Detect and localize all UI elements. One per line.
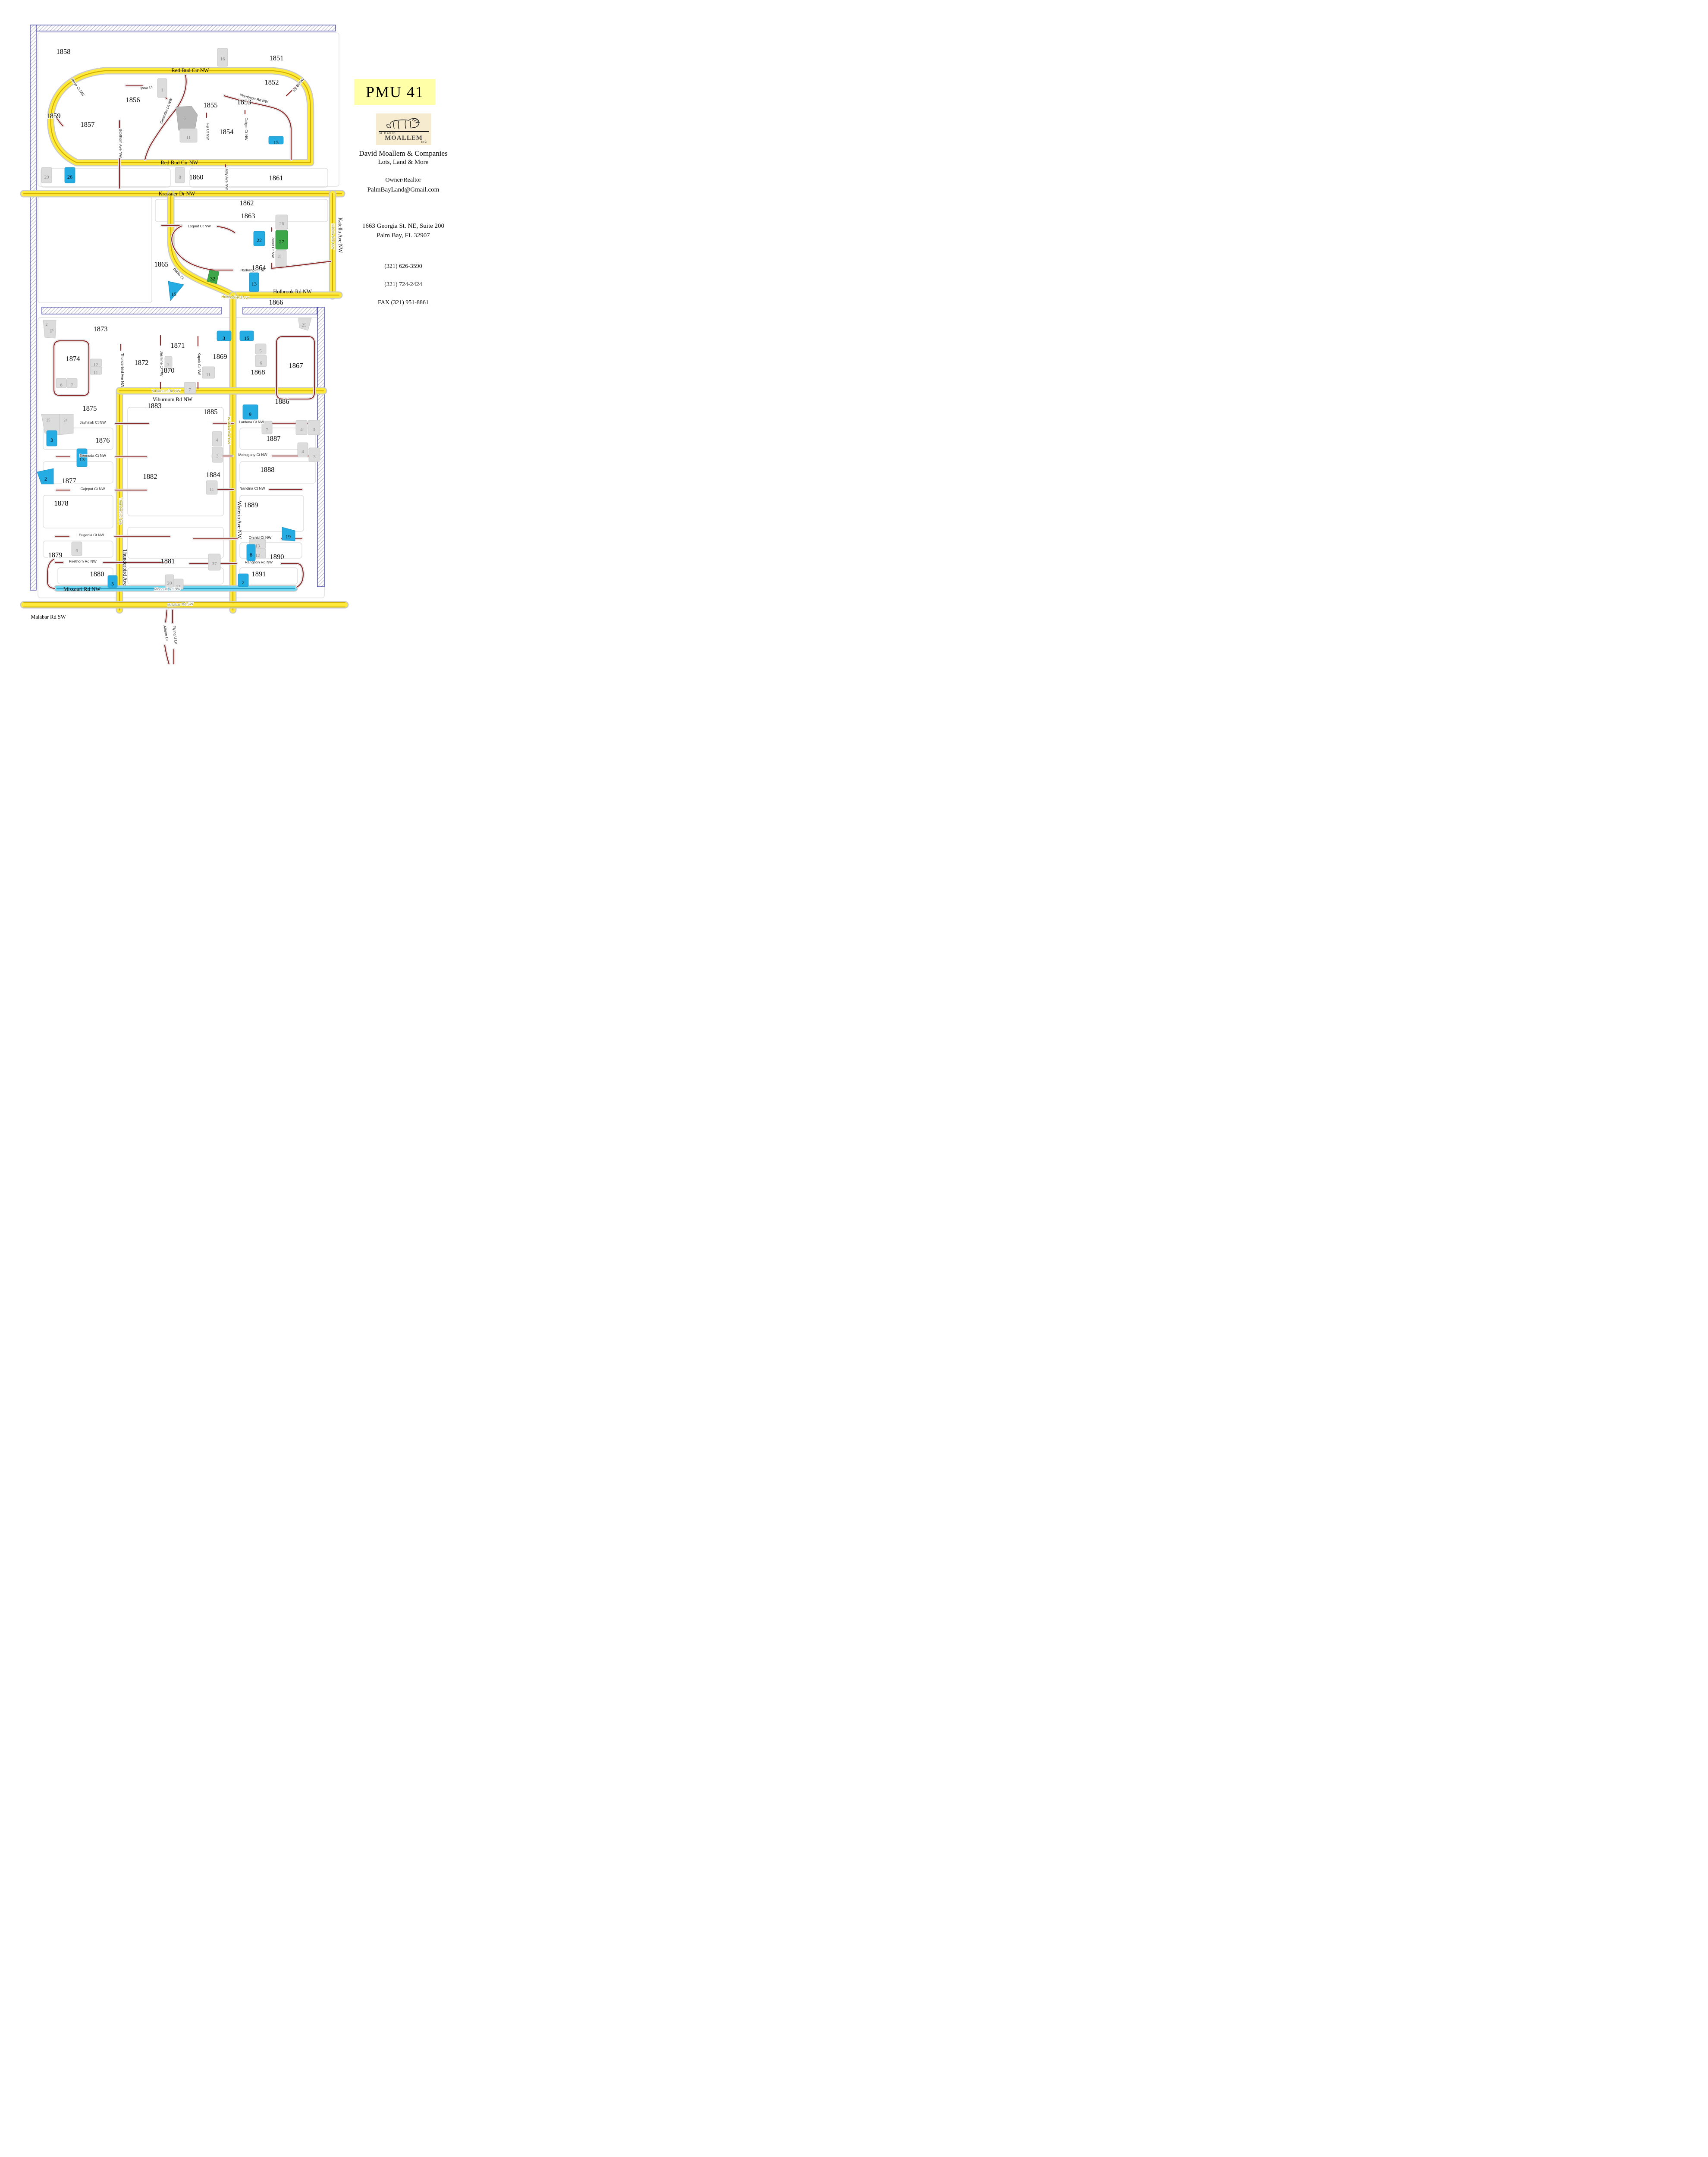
parcel-number: 2: [242, 579, 245, 585]
street-label-malabar-rd-sw: Malabar Rd SW: [167, 602, 193, 607]
parcel-number: 19: [286, 534, 291, 540]
street-label-orchid-ct-nw: Orchid Ct NW: [249, 535, 271, 540]
street-label-mahogany-ct-nw: Mahogany Ct NW: [238, 453, 267, 457]
company-tagline: Lots, Land & More: [343, 159, 464, 166]
parcel-number: 11: [94, 370, 98, 375]
block-number-1856: 1856: [126, 96, 140, 104]
parcel-letter-P: P: [50, 328, 53, 335]
company-role: Owner/Realtor: [343, 177, 464, 184]
street-label-holbrook-rd-nw: Holbrook Rd NW: [273, 289, 312, 295]
block-number-1890: 1890: [270, 553, 284, 561]
parcel-number: 20: [167, 581, 173, 586]
parcel-number: 11: [206, 372, 211, 377]
parcel-number: 25: [302, 323, 307, 328]
block-number-1883: 1883: [148, 402, 162, 410]
pmu-title-badge: PMU 41: [354, 79, 436, 105]
street-label-holbrook-rd-nw: Holbrook Rd NW: [221, 294, 249, 300]
street-label-red-bud-cir-nw: Red Bud Cir NW: [171, 67, 209, 73]
parcel-number: 7: [71, 383, 73, 388]
street-label-boxthorn-ave-nw: Boxthorn Ave NW: [119, 129, 123, 158]
street-label-flying-u-ln: Flying U Ln: [172, 626, 178, 645]
moallem-logo: M DAVID MOALLEM INC: [376, 113, 431, 145]
parcel-number: 6: [75, 548, 78, 553]
street-label-lantana-ct-nw: Lantana Ct NW: [239, 420, 264, 424]
parcel-number: 1: [161, 88, 163, 93]
company-fax: FAX (321) 951-8861: [343, 299, 464, 306]
hydrangea-rd-casing: [172, 226, 330, 270]
block-number-1886: 1886: [275, 397, 289, 406]
parcel-number: 6: [260, 361, 262, 366]
block-number-1867: 1867: [289, 362, 303, 370]
company-name: David Moallem & Companies: [343, 149, 464, 158]
street-label-rangoon-rd-nw: Rangoon Rd NW: [245, 560, 273, 564]
street-label-geiger-ct-nw: Geiger Ct NW: [244, 118, 248, 141]
boundary-hatch: [32, 25, 336, 31]
parcel-number: 3: [313, 454, 316, 459]
block-number-1851: 1851: [270, 54, 284, 62]
parcel-number: 6: [184, 116, 186, 121]
block-number-1891: 1891: [252, 570, 266, 578]
street-label-red-bud-cir-nw: Red Bud Cir NW: [160, 160, 198, 166]
block-number-1868: 1868: [251, 368, 265, 376]
street-label-wisteria-ave-nw: Wisteria Ave NW: [236, 501, 242, 539]
block-outline: [43, 495, 113, 528]
company-address-line2: Palm Bay, FL 32907: [343, 232, 464, 239]
parcel-number: 13: [255, 544, 261, 549]
parcel-number: 15: [273, 139, 279, 145]
parcel-number: 3: [223, 335, 225, 341]
street-label-firethorn-rd-nw: Firethorn Rd NW: [69, 559, 97, 563]
street-label-thunderbird-ave: Thunderbird Ave: [122, 549, 128, 586]
parcel-number: 13: [251, 281, 257, 287]
street-label-nandina-ct-nw: Nandina Ct NW: [239, 486, 265, 491]
parcel-number: 28: [278, 254, 282, 258]
pmu-title: PMU 41: [366, 83, 424, 101]
block-number-1853: 1853: [237, 98, 251, 106]
street-label-loquat-ct-nw: Loquat Ct NW: [188, 224, 210, 228]
highlighted-parcels: 1616112926815222627283213152121167331556…: [37, 48, 320, 589]
parcel-number: 2: [44, 476, 47, 482]
parcel-number: 26: [67, 174, 72, 180]
parcel-24[interactable]: [60, 414, 73, 435]
street-label-cajeput-ct-nw: Cajeput Ct NW: [81, 487, 105, 491]
boundary-hatch: [42, 307, 221, 314]
plumbago-rd-nw-casing: [224, 96, 291, 160]
block-number-1857: 1857: [81, 120, 95, 129]
block-number-1854: 1854: [220, 128, 234, 136]
block-number-1865: 1865: [154, 260, 169, 268]
block-number-1858: 1858: [57, 47, 71, 56]
parcel-number: 29: [44, 175, 50, 180]
block-number-1879: 1879: [48, 551, 63, 559]
parcel-number: 27: [279, 239, 284, 245]
block-number-1871: 1871: [171, 341, 185, 349]
block-number-1882: 1882: [143, 472, 157, 481]
block-number-1852: 1852: [265, 78, 279, 86]
parcel-number: 4: [301, 449, 304, 454]
block-number-1888: 1888: [261, 465, 275, 474]
boundary-hatch: [317, 307, 324, 587]
block-number-1859: 1859: [47, 112, 61, 120]
block-number-1887: 1887: [267, 434, 281, 443]
parcel-number: 32: [210, 276, 215, 282]
parcel-number: 25: [47, 418, 51, 422]
parcel-number: 37: [212, 561, 217, 566]
street-label-wisteria-ave-nw: Wisteria Ave NW: [227, 417, 231, 444]
parcel-number: 5: [111, 581, 114, 587]
parcel-number: 15: [244, 335, 249, 341]
parcel-number: 22: [257, 237, 262, 243]
company-phone-2[interactable]: (321) 724-2424: [343, 281, 464, 288]
parcel-number: 16: [220, 57, 226, 62]
parcel-number: 24: [64, 418, 68, 422]
street-label-katella-ave-nw: Katella Ave NW: [337, 217, 343, 253]
block-number-1881: 1881: [161, 557, 175, 565]
block-outline: [38, 197, 152, 303]
block-outline: [240, 462, 316, 483]
block-number-1875: 1875: [83, 404, 97, 412]
block-number-1878: 1878: [54, 499, 69, 507]
parcel-number: 3: [50, 437, 53, 443]
parcel-number: 8: [179, 175, 181, 180]
parcel-number: 4: [216, 438, 218, 443]
boundary-hatch: [243, 307, 317, 314]
block-number-1880: 1880: [90, 570, 104, 578]
parcel-number: 11: [210, 487, 214, 492]
parcel-number: 12: [255, 553, 260, 558]
block-outline: [41, 168, 170, 187]
block-number-1873: 1873: [94, 325, 108, 333]
street-label-missouri-rd-nw: Missouri Rd NW: [63, 586, 100, 592]
plat-map-page: 1616112926815222627283213152121167331556…: [0, 0, 474, 664]
block-number-1884: 1884: [206, 471, 220, 479]
parcel-number: 5: [259, 349, 262, 354]
logo-text-name: MOALLEM: [376, 135, 431, 141]
parcel-number: 26: [279, 221, 285, 226]
street-label-bermuda-ct-nw: Bermuda Ct NW: [79, 453, 106, 458]
street-label-katella-ave-nw: Katella Ave NW: [331, 224, 335, 249]
block-number-1863: 1863: [241, 212, 255, 220]
block-number-1877: 1877: [62, 477, 76, 485]
parcel-number: 9: [249, 411, 251, 417]
street-label-missouri-rd-nw: Missouri Rd NW: [154, 587, 180, 591]
company-phone-1[interactable]: (321) 626-3590: [343, 263, 464, 270]
block-number-1855: 1855: [204, 101, 218, 109]
street-label-krassner-dr-nw: Krassner Dr NW: [159, 191, 195, 197]
block-number-1874: 1874: [66, 355, 80, 363]
block-number-1870: 1870: [160, 366, 175, 374]
parcel-number: 6: [60, 383, 63, 388]
block-number-1872: 1872: [135, 358, 149, 367]
block-number-1869: 1869: [213, 352, 227, 361]
street-label-allison-dr: Allison Dr: [163, 625, 170, 641]
street-label-fiji-ct-nw: Fiji Ct NW: [206, 123, 210, 140]
block-outline: [190, 168, 328, 187]
parcel-number: 4: [300, 427, 303, 432]
block-number-1889: 1889: [244, 501, 258, 509]
block-number-1876: 1876: [96, 436, 110, 444]
parcel-number: 8: [250, 552, 252, 558]
block-number-1866: 1866: [269, 298, 283, 306]
company-address-line1: 1663 Georgia St. NE, Suite 200: [343, 223, 464, 230]
block-outline: [58, 568, 113, 584]
block-number-1861: 1861: [269, 174, 283, 182]
parcel-number: 15: [171, 291, 176, 297]
street-label-jayhawk-ct-nw: Jayhawk Ct NW: [80, 420, 106, 424]
street-label-malabar-rd-sw: Malabar Rd SW: [31, 614, 66, 620]
parcel-number: 11: [186, 135, 191, 140]
street-label-thunderbird-ave: Thunderbird Ave: [119, 498, 123, 525]
parcel-number: 3: [313, 427, 315, 432]
block-number-1864: 1864: [252, 264, 266, 272]
lion-icon: [376, 116, 431, 131]
street-label-kapok-ct-nw: Kapok Ct NW: [197, 352, 201, 375]
parcel-number: 7: [188, 387, 191, 393]
parcel-6[interactable]: [176, 106, 198, 130]
parcel-number: 7: [266, 428, 268, 433]
street-label-holly-ave-nw: Holly Ave NW: [225, 167, 229, 190]
block-number-1862: 1862: [240, 199, 254, 207]
logo-text-inc: INC: [376, 141, 431, 145]
block-outline: [128, 527, 223, 558]
parcel-number: 2: [46, 322, 48, 327]
boundary-hatch: [30, 25, 36, 590]
street-label-thunderbird-ave-nw: Thunderbird Ave NW: [120, 353, 125, 387]
block-number-1885: 1885: [204, 408, 218, 416]
street-label-eugenia-ct-nw: Eugenia Ct NW: [79, 533, 104, 537]
company-email[interactable]: PalmBayLand@Gmail.com: [343, 186, 464, 194]
street-label-viburnum-rd-nw: Viburnum Rd NW: [152, 389, 180, 393]
street-label-privet-ct-nw: Privet Ct NW: [271, 236, 275, 258]
parcel-number: 3: [217, 454, 219, 459]
block-number-1860: 1860: [189, 173, 204, 181]
